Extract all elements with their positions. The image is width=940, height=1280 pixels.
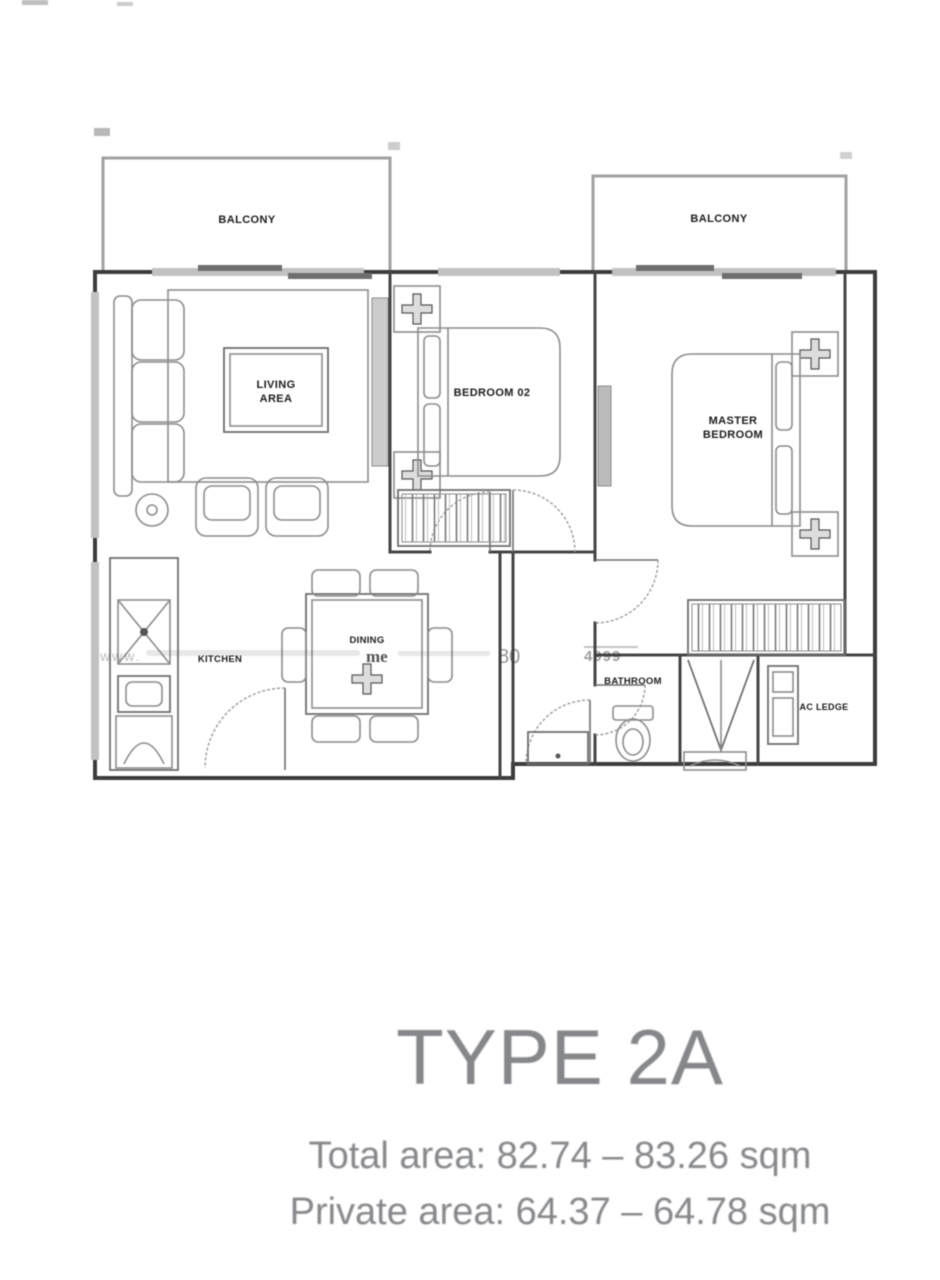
private-area-text: Private area: 64.37 – 64.78 sqm — [170, 1191, 940, 1234]
bed-queen — [418, 328, 560, 476]
total-area-text: Total area: 82.74 – 83.26 sqm — [170, 1135, 940, 1178]
ac-ledge-label: AC LEDGE — [800, 702, 849, 712]
chair — [312, 716, 360, 742]
scan-artifacts — [22, 0, 852, 159]
closet — [684, 660, 754, 770]
plan-caption: TYPE 2A Total area: 82.74 – 83.26 sqm Pr… — [170, 1012, 940, 1234]
balcony-right: BALCONY — [593, 176, 846, 272]
floor-plan: BALCONY BALCONY — [0, 0, 940, 830]
armchair-2 — [266, 478, 328, 536]
watermark-prefix: www. — [99, 648, 141, 664]
master-bedroom: MASTER BEDROOM — [598, 332, 845, 655]
floor-plan-svg: BALCONY BALCONY — [0, 0, 940, 830]
balcony-right-label: BALCONY — [690, 213, 747, 225]
bedroom-02: BEDROOM 02 — [394, 286, 560, 546]
ac-diffuser-icon — [800, 519, 830, 549]
unit-type-title: TYPE 2A — [170, 1012, 940, 1103]
tv-console — [372, 298, 388, 466]
sink-icon — [118, 676, 170, 712]
chair — [370, 570, 418, 596]
bathroom-label: BATHROOM — [604, 676, 662, 687]
wardrobe-bedroom-02 — [398, 490, 510, 546]
chair — [370, 716, 418, 742]
ac-diffuser-icon — [800, 339, 830, 369]
watermark-number-1: 80 — [498, 646, 520, 668]
dining-label: DINING — [349, 635, 384, 646]
watermark: www. me 80 4999 — [99, 646, 638, 668]
washer-icon — [116, 716, 172, 768]
ceiling-fixture-icon — [352, 664, 382, 694]
master-bedroom-label-2: BEDROOM — [703, 429, 763, 441]
vanity-cabinet — [528, 732, 588, 764]
balcony-left: BALCONY — [103, 158, 390, 272]
bedroom-02-label: BEDROOM 02 — [454, 387, 531, 399]
tv-console — [598, 386, 611, 486]
toilet-icon — [613, 706, 653, 761]
armchair-1 — [196, 478, 258, 536]
living-area-label-1: LIVING — [256, 379, 295, 391]
living-room: LIVING AREA — [114, 290, 388, 536]
living-area-label-2: AREA — [260, 393, 293, 405]
balcony-left-label: BALCONY — [218, 214, 275, 226]
ac-ledge: AC LEDGE — [768, 666, 848, 744]
watermark-number-2: 4999 — [584, 648, 621, 665]
wardrobe-master — [688, 600, 845, 655]
side-table — [136, 494, 168, 526]
kitchen: KITCHEN — [110, 558, 242, 770]
ac-unit-icon — [768, 666, 798, 744]
chair — [312, 570, 360, 596]
ac-diffuser-icon — [402, 294, 432, 324]
sofa — [114, 296, 184, 496]
ac-diffuser-icon — [402, 460, 432, 490]
watermark-word: me — [366, 647, 388, 666]
master-bedroom-label-1: MASTER — [709, 415, 758, 427]
